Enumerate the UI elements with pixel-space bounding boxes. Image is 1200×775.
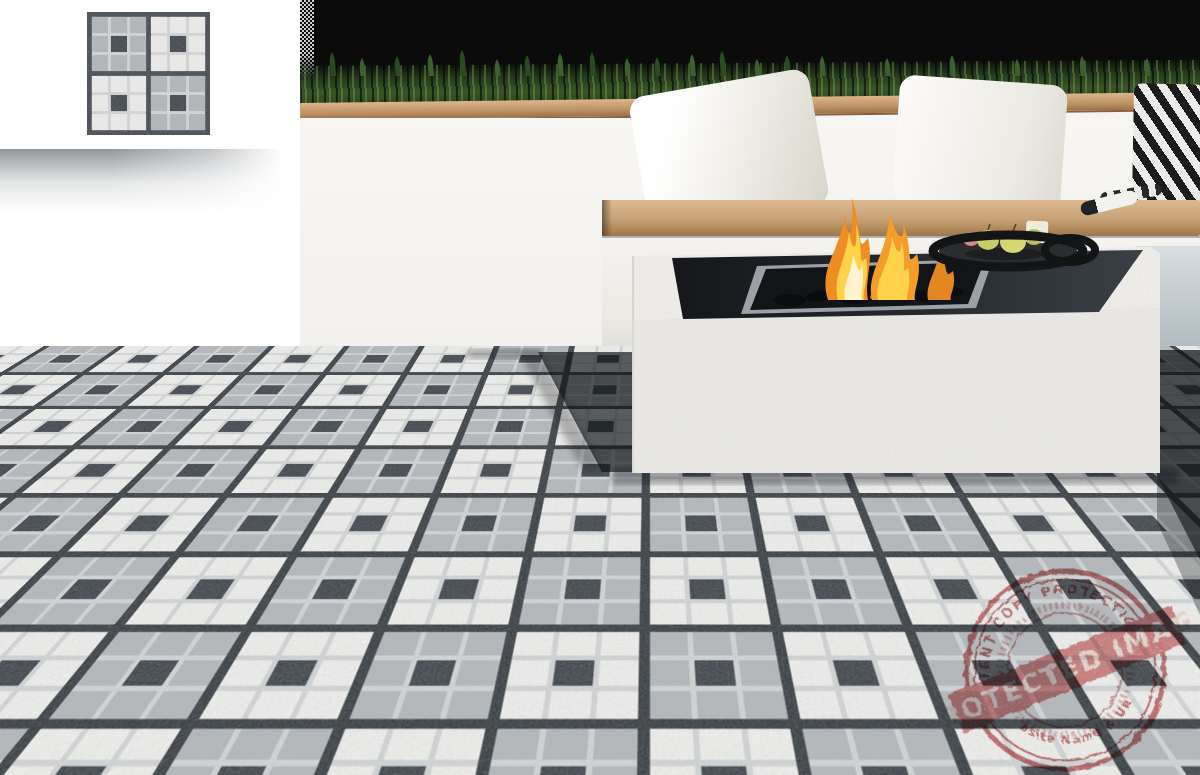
gray-blue-wall xyxy=(1136,246,1200,362)
swatch-card-shadow xyxy=(0,149,292,213)
tile-pattern-swatch xyxy=(87,12,210,135)
patio-photo xyxy=(300,0,1200,362)
product-image: WP CONTENT COPY PROTECTION PLUGIN My Web… xyxy=(0,0,1200,775)
bench-base xyxy=(602,238,1200,362)
seat-end-shadow xyxy=(602,200,612,236)
tiled-floor xyxy=(0,346,1200,775)
floor-plane xyxy=(0,346,1200,775)
photo-edge-dither xyxy=(300,0,314,78)
floor-grain xyxy=(0,346,1200,775)
swatch-grain xyxy=(87,12,210,135)
grass-tufts xyxy=(300,46,1200,76)
white-pillow-right xyxy=(892,74,1069,213)
